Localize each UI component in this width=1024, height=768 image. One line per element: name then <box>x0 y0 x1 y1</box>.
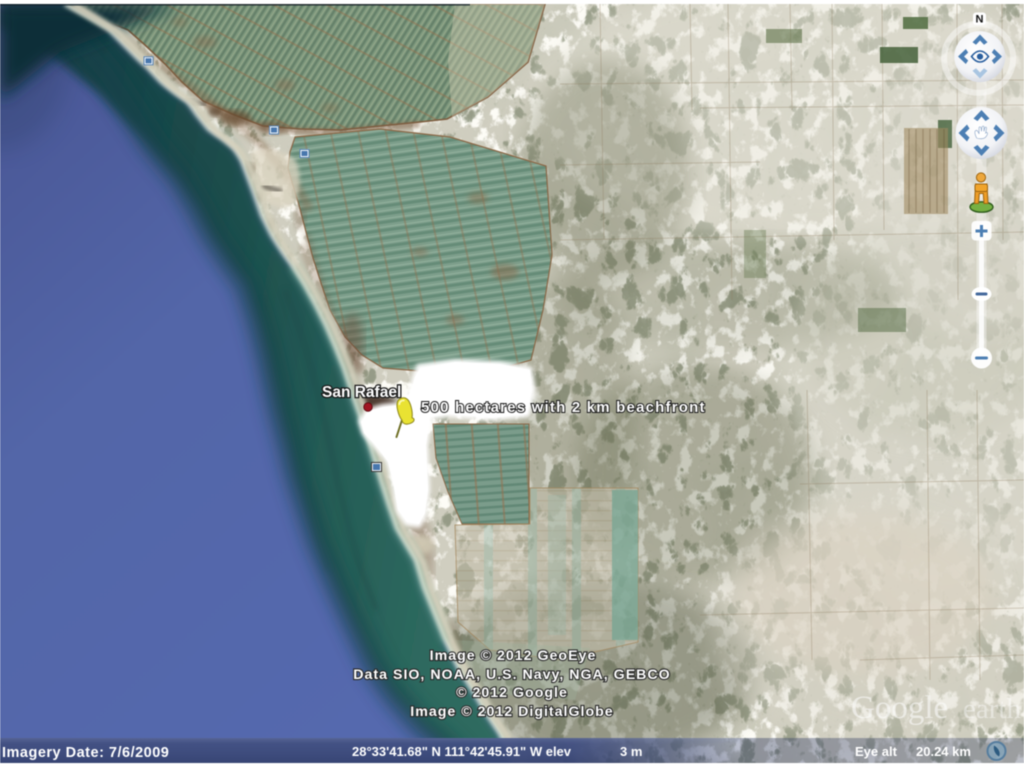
svg-text:Eye alt: Eye alt <box>855 744 898 759</box>
svg-text:Google: Google <box>851 690 948 726</box>
svg-text:20.24 km: 20.24 km <box>916 744 971 759</box>
svg-text:Data SIO, NOAA, U.S. Navy, NGA: Data SIO, NOAA, U.S. Navy, NGA, GEBCO <box>353 667 670 683</box>
svg-text:© 2012 Google: © 2012 Google <box>456 685 568 701</box>
svg-text:earth: earth <box>963 693 1021 725</box>
svg-text:Image © 2012 DigitalGlobe: Image © 2012 DigitalGlobe <box>410 704 613 720</box>
svg-text:3 m: 3 m <box>620 744 642 759</box>
svg-text:500 hectares with 2 km beachfr: 500 hectares with 2 km beachfront <box>421 399 706 416</box>
svg-text:Imagery Date: 7/6/2009: Imagery Date: 7/6/2009 <box>2 745 169 761</box>
svg-text:San Rafael: San Rafael <box>322 384 401 401</box>
svg-text:28°33'41.68" N 111°42'45.91" W: 28°33'41.68" N 111°42'45.91" W elev <box>352 744 572 759</box>
svg-text:Image © 2012 GeoEye: Image © 2012 GeoEye <box>430 648 597 664</box>
svg-text:N: N <box>976 14 984 26</box>
